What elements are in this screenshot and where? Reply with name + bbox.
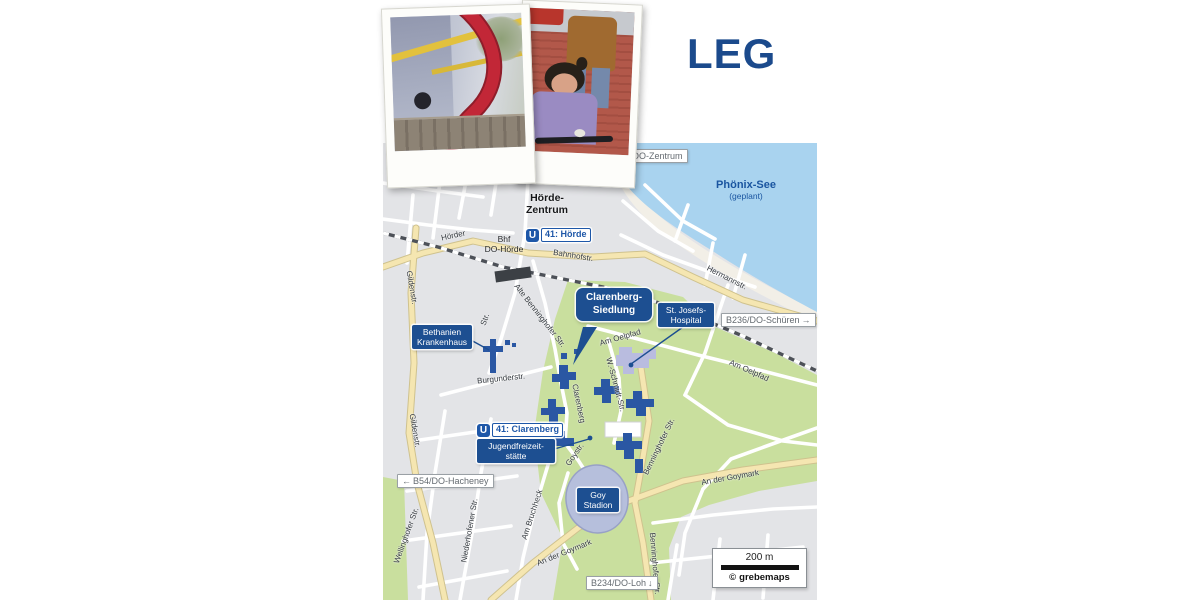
pointer-dot	[588, 436, 593, 441]
sign-label: B234/DO-Loh	[591, 578, 646, 588]
right-arrow-icon: →	[802, 315, 811, 325]
map-credit: © grebemaps	[729, 572, 790, 583]
poi-line: stätte	[481, 451, 551, 461]
photo-image	[523, 8, 634, 155]
pointer-dot	[629, 363, 634, 368]
sign-b236: B236/DO-Schüren →	[721, 313, 816, 327]
poi-line: Jugendfreizeit-	[481, 441, 551, 451]
district-line2: Zentrum	[515, 204, 579, 216]
ubahn-label: 41: Clarenberg	[492, 423, 563, 437]
lake-status: (geplant)	[698, 191, 794, 201]
poi-bethanien: Bethanien Krankenhaus	[412, 325, 472, 349]
poi-line: Bethanien	[416, 327, 468, 337]
poi-st-josefs: St. Josefs- Hospital	[658, 303, 714, 327]
ubahn-label: 41: Hörde	[541, 228, 591, 242]
scale-bar	[721, 565, 799, 570]
poi-goy-stadion: Goy Stadion	[577, 488, 619, 512]
ubahn-badge-clarenberg: U 41: Clarenberg	[477, 423, 563, 437]
poi-line: Hospital	[662, 315, 710, 325]
copyright-icon: ©	[729, 572, 736, 583]
photo-image	[390, 13, 526, 151]
sign-b54: ← B54/DO-Hacheney	[397, 474, 494, 488]
stone-wall-shape	[394, 113, 526, 151]
bhf-station-label: Bhf DO-Hörde	[476, 235, 532, 255]
down-arrow-icon: ↓	[648, 578, 653, 588]
ubahn-icon: U	[526, 229, 539, 242]
callout-clarenberg-siedlung: Clarenberg- Siedlung	[576, 288, 652, 321]
ubahn-icon: U	[477, 424, 490, 437]
poi-line: Goy	[581, 490, 615, 500]
poi-line: Krankenhaus	[416, 337, 468, 347]
leg-logo: LEG	[687, 30, 776, 78]
left-arrow-icon: ←	[402, 476, 411, 486]
district-label: Hörde- Zentrum	[515, 192, 579, 216]
poi-line: Stadion	[581, 500, 615, 510]
callout-line1: Clarenberg-	[583, 292, 645, 305]
red-car-shape	[529, 8, 563, 25]
map-scale-box: 200 m © grebemaps	[712, 548, 807, 588]
poi-line: St. Josefs-	[662, 305, 710, 315]
location-map: Hörder Bahnhofstr. Hermannstr. Gildenstr…	[383, 143, 817, 600]
credit-name: grebemaps	[739, 572, 790, 583]
callout-line2: Siedlung	[583, 305, 645, 318]
sign-label: DO-Zentrum	[633, 151, 683, 161]
photo-playground	[381, 3, 536, 188]
sign-label: B54/DO-Hacheney	[413, 476, 489, 486]
ubahn-badge-hoerde: U 41: Hörde	[526, 228, 591, 242]
scale-distance: 200 m	[746, 552, 774, 563]
lake-label: Phönix-See (geplant)	[698, 179, 794, 201]
district-line1: Hörde-	[515, 192, 579, 204]
sign-label: B236/DO-Schüren	[726, 315, 800, 325]
bhf-line2: DO-Hörde	[476, 245, 532, 255]
flyer-page: LEG	[0, 0, 1200, 600]
poi-jugendfreizeitstaette: Jugendfreizeit- stätte	[477, 439, 555, 463]
lake-name: Phönix-See	[698, 179, 794, 191]
sign-b234: B234/DO-Loh ↓	[586, 576, 658, 590]
